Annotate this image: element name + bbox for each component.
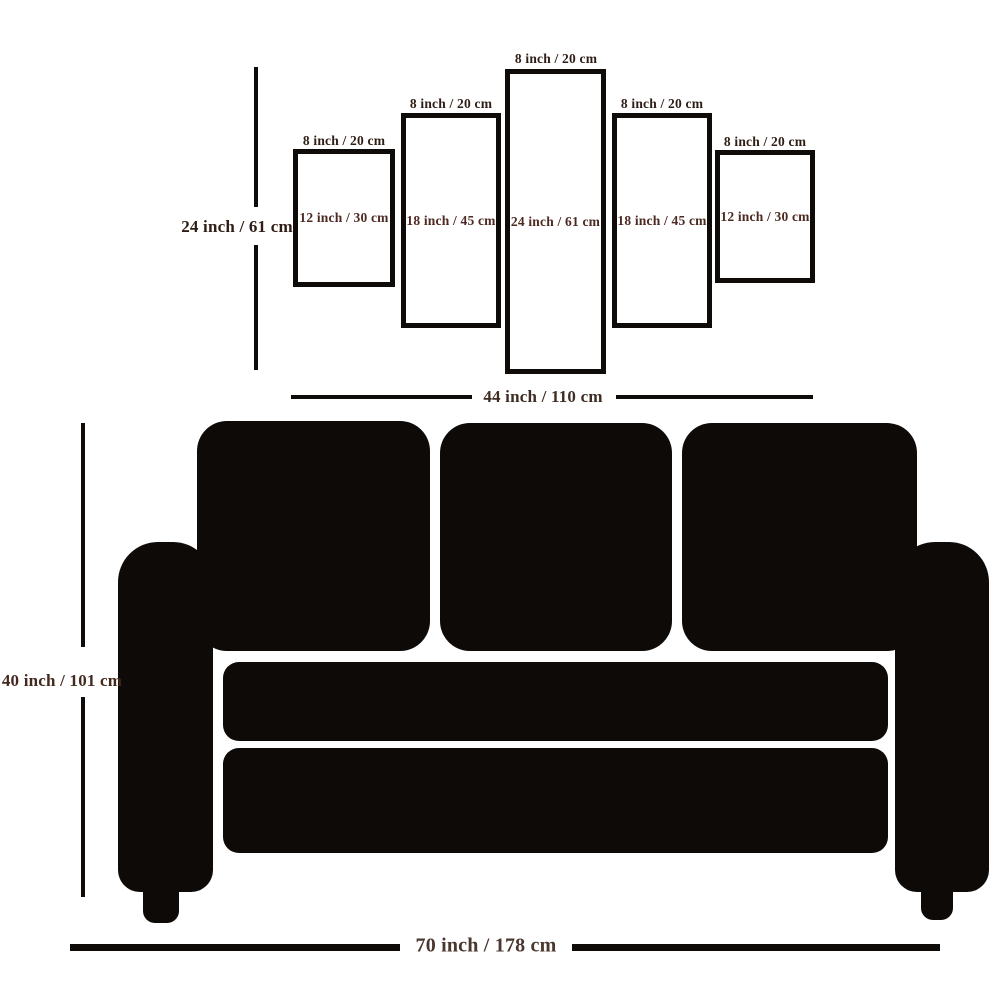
panel-5-width-label: 8 inch / 20 cm <box>724 134 806 150</box>
sofa-height-label: 40 inch / 101 cm <box>2 671 122 691</box>
panel-set-height-label: 24 inch / 61 cm <box>181 217 293 237</box>
panel-3-size-label: 24 inch / 61 cm <box>511 214 600 230</box>
sofa-back-cushion-left <box>197 421 430 651</box>
sofa-armrest-right <box>895 542 989 892</box>
panel-4-frame: 18 inch / 45 cm <box>612 113 712 328</box>
panel-5-frame: 12 inch / 30 cm <box>715 150 815 283</box>
panel-3-width-label: 8 inch / 20 cm <box>515 51 597 67</box>
panel-height-dim-line-bottom <box>254 245 258 370</box>
panel-width-dim-line-left <box>291 395 472 399</box>
sofa-seat-cushion-bottom <box>223 748 888 853</box>
panel-1-frame: 12 inch / 30 cm <box>293 149 395 287</box>
panel-2-size-label: 18 inch / 45 cm <box>406 213 495 229</box>
sofa-back-cushion-middle <box>440 423 672 651</box>
size-guide-diagram: 8 inch / 20 cm 8 inch / 20 cm 8 inch / 2… <box>0 0 1000 1000</box>
sofa-width-dim-line-left <box>70 944 400 951</box>
panel-2-frame: 18 inch / 45 cm <box>401 113 501 328</box>
sofa-width-label: 70 inch / 178 cm <box>416 935 557 958</box>
panel-width-dim-line-right <box>616 395 813 399</box>
sofa-width-dim-line-right <box>572 944 940 951</box>
sofa-back-cushion-right <box>682 423 917 651</box>
panel-4-width-label: 8 inch / 20 cm <box>621 96 703 112</box>
panel-1-width-label: 8 inch / 20 cm <box>303 133 385 149</box>
panel-3-frame: 24 inch / 61 cm <box>505 69 606 374</box>
panel-5-size-label: 12 inch / 30 cm <box>720 209 809 225</box>
panel-set-width-label: 44 inch / 110 cm <box>483 387 602 407</box>
panel-1-size-label: 12 inch / 30 cm <box>299 210 388 226</box>
sofa-seat-cushion-top <box>223 662 888 741</box>
panel-height-dim-line-top <box>254 67 258 207</box>
panel-2-width-label: 8 inch / 20 cm <box>410 96 492 112</box>
sofa-armrest-left <box>118 542 213 892</box>
panel-4-size-label: 18 inch / 45 cm <box>617 213 706 229</box>
sofa-height-dim-line-top <box>81 423 85 647</box>
sofa-height-dim-line-bottom <box>81 697 85 897</box>
